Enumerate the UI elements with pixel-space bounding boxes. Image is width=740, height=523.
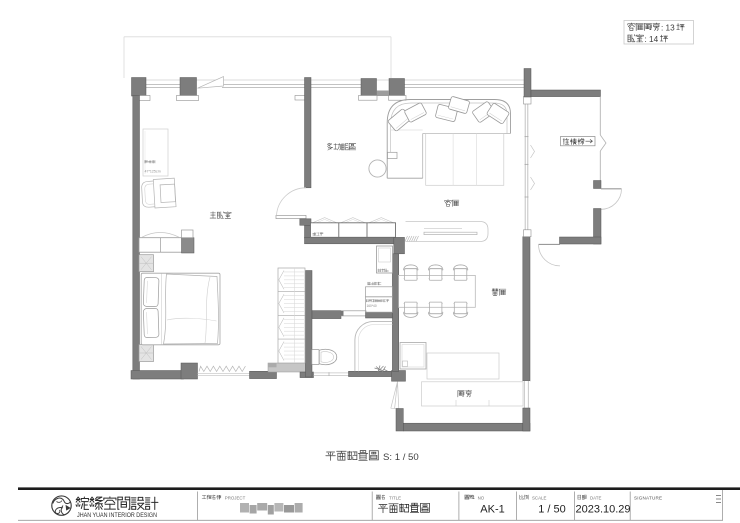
svg-text:DATE: DATE <box>590 495 601 500</box>
svg-text:SCALE: SCALE <box>532 495 546 500</box>
svg-text:47*125cm: 47*125cm <box>145 170 161 174</box>
svg-text:S: 1 / 50: S: 1 / 50 <box>383 452 419 463</box>
svg-text:JHAN YUAN INTERIOR DESIGN: JHAN YUAN INTERIOR DESIGN <box>77 512 157 519</box>
svg-text:TITLE: TITLE <box>389 495 401 500</box>
svg-text:: 14: : 14 <box>645 35 659 44</box>
svg-text:PROJECT: PROJECT <box>225 495 246 500</box>
svg-text:: 13: : 13 <box>661 23 675 32</box>
svg-text:AK-1: AK-1 <box>480 504 504 516</box>
svg-text:160*40: 160*40 <box>367 304 377 308</box>
svg-text:SIGNATURE: SIGNATURE <box>634 495 662 500</box>
svg-text:1 / 50: 1 / 50 <box>538 504 566 516</box>
svg-text:2023.10.29: 2023.10.29 <box>575 504 630 516</box>
svg-text:NO: NO <box>478 495 485 500</box>
